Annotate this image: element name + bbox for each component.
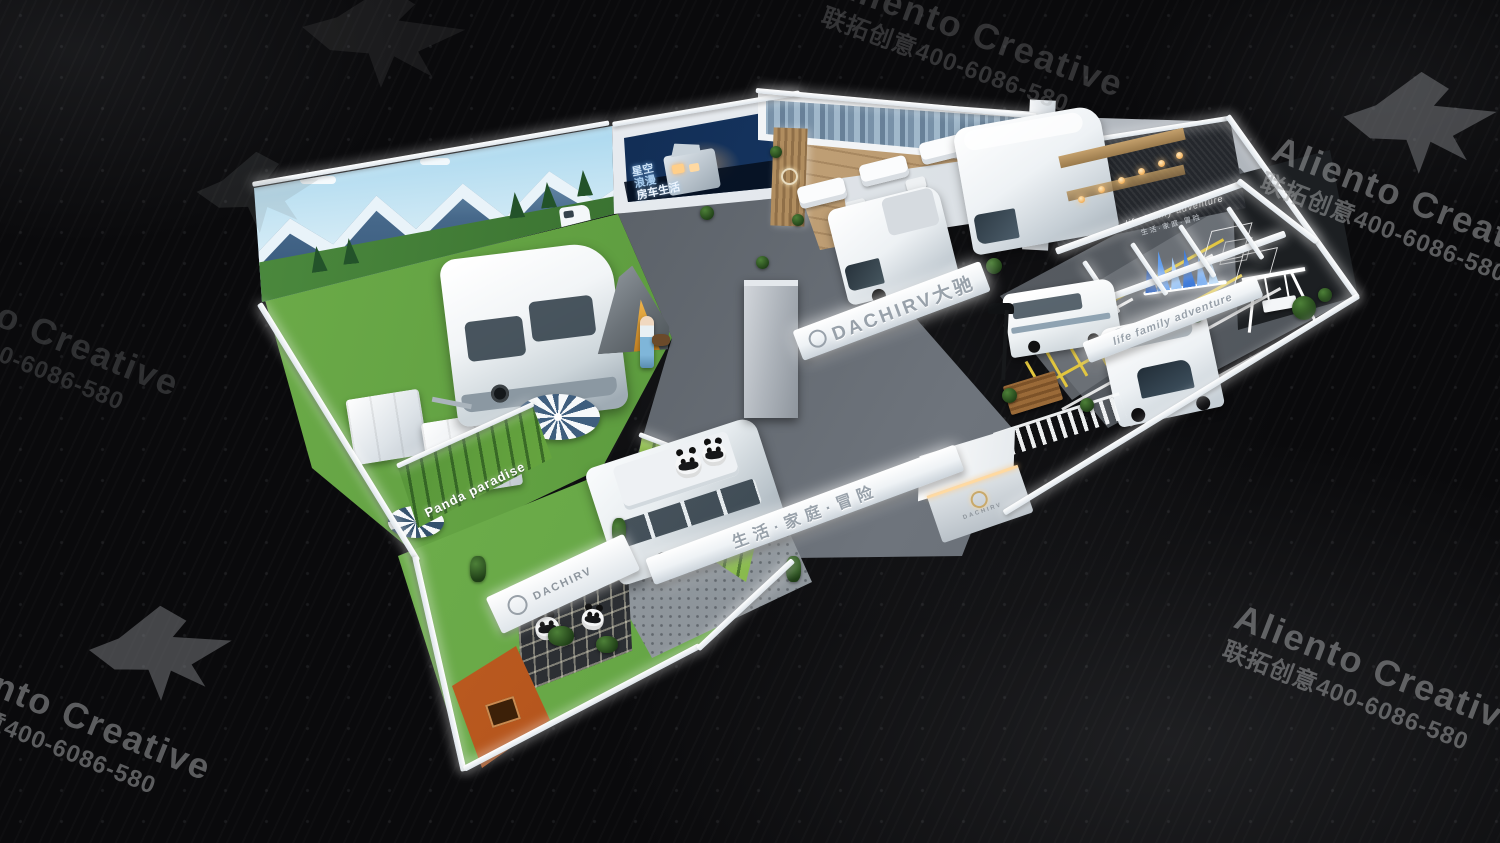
rv-large-windshield bbox=[973, 208, 1020, 245]
street-lamp-head bbox=[988, 303, 1014, 314]
brand-ring-icon bbox=[504, 592, 531, 619]
shrub bbox=[596, 636, 618, 653]
potted-plant bbox=[792, 214, 804, 226]
potted-plant bbox=[700, 206, 714, 220]
parasol-hub bbox=[554, 413, 562, 421]
display-plinth bbox=[744, 280, 798, 418]
hanging-bulb bbox=[1138, 168, 1145, 175]
hanging-bulb bbox=[1118, 177, 1125, 184]
caravan-window bbox=[464, 315, 526, 362]
hanging-bulb bbox=[1176, 152, 1183, 159]
panda-figure bbox=[673, 446, 704, 480]
bamboo-clump bbox=[470, 556, 486, 582]
rv-street-front-windshield bbox=[1136, 358, 1195, 399]
caravan-window bbox=[528, 295, 596, 343]
potted-plant bbox=[1318, 288, 1332, 302]
potted-plant bbox=[1292, 296, 1316, 320]
swing-chain bbox=[1264, 278, 1270, 302]
potted-plant bbox=[986, 258, 1002, 274]
render-stage: 星空 浪漫 房车生活 life family adventure 生活·家庭·冒… bbox=[0, 0, 1500, 843]
brand-ring-icon bbox=[806, 327, 829, 350]
potted-plant bbox=[1002, 388, 1017, 403]
hanging-bulb bbox=[1158, 160, 1165, 167]
rv-street-side-windows bbox=[1011, 293, 1083, 320]
rv-entrance-windshield bbox=[844, 258, 885, 292]
pillar-brand-ring-icon bbox=[781, 168, 799, 186]
panda-figure bbox=[581, 603, 606, 631]
rv-entrance-roofbox bbox=[881, 187, 941, 236]
potted-plant bbox=[770, 146, 782, 158]
rv-street-front-wheel bbox=[1130, 407, 1147, 424]
shrub bbox=[548, 626, 574, 646]
swing-chain bbox=[1284, 274, 1290, 298]
mural-campervan-window bbox=[563, 210, 574, 218]
mural-cloud bbox=[420, 158, 450, 165]
potted-plant bbox=[756, 256, 769, 269]
panda-figure bbox=[701, 437, 728, 467]
hanging-bulb bbox=[1078, 196, 1085, 203]
potted-plant bbox=[1080, 398, 1094, 412]
firewood-logs bbox=[652, 334, 670, 346]
led-campervan-window bbox=[689, 163, 700, 173]
hanging-bulb bbox=[1098, 186, 1105, 193]
rv-street-side-wheel bbox=[1027, 340, 1041, 354]
wood-slat-pillar bbox=[770, 127, 807, 226]
